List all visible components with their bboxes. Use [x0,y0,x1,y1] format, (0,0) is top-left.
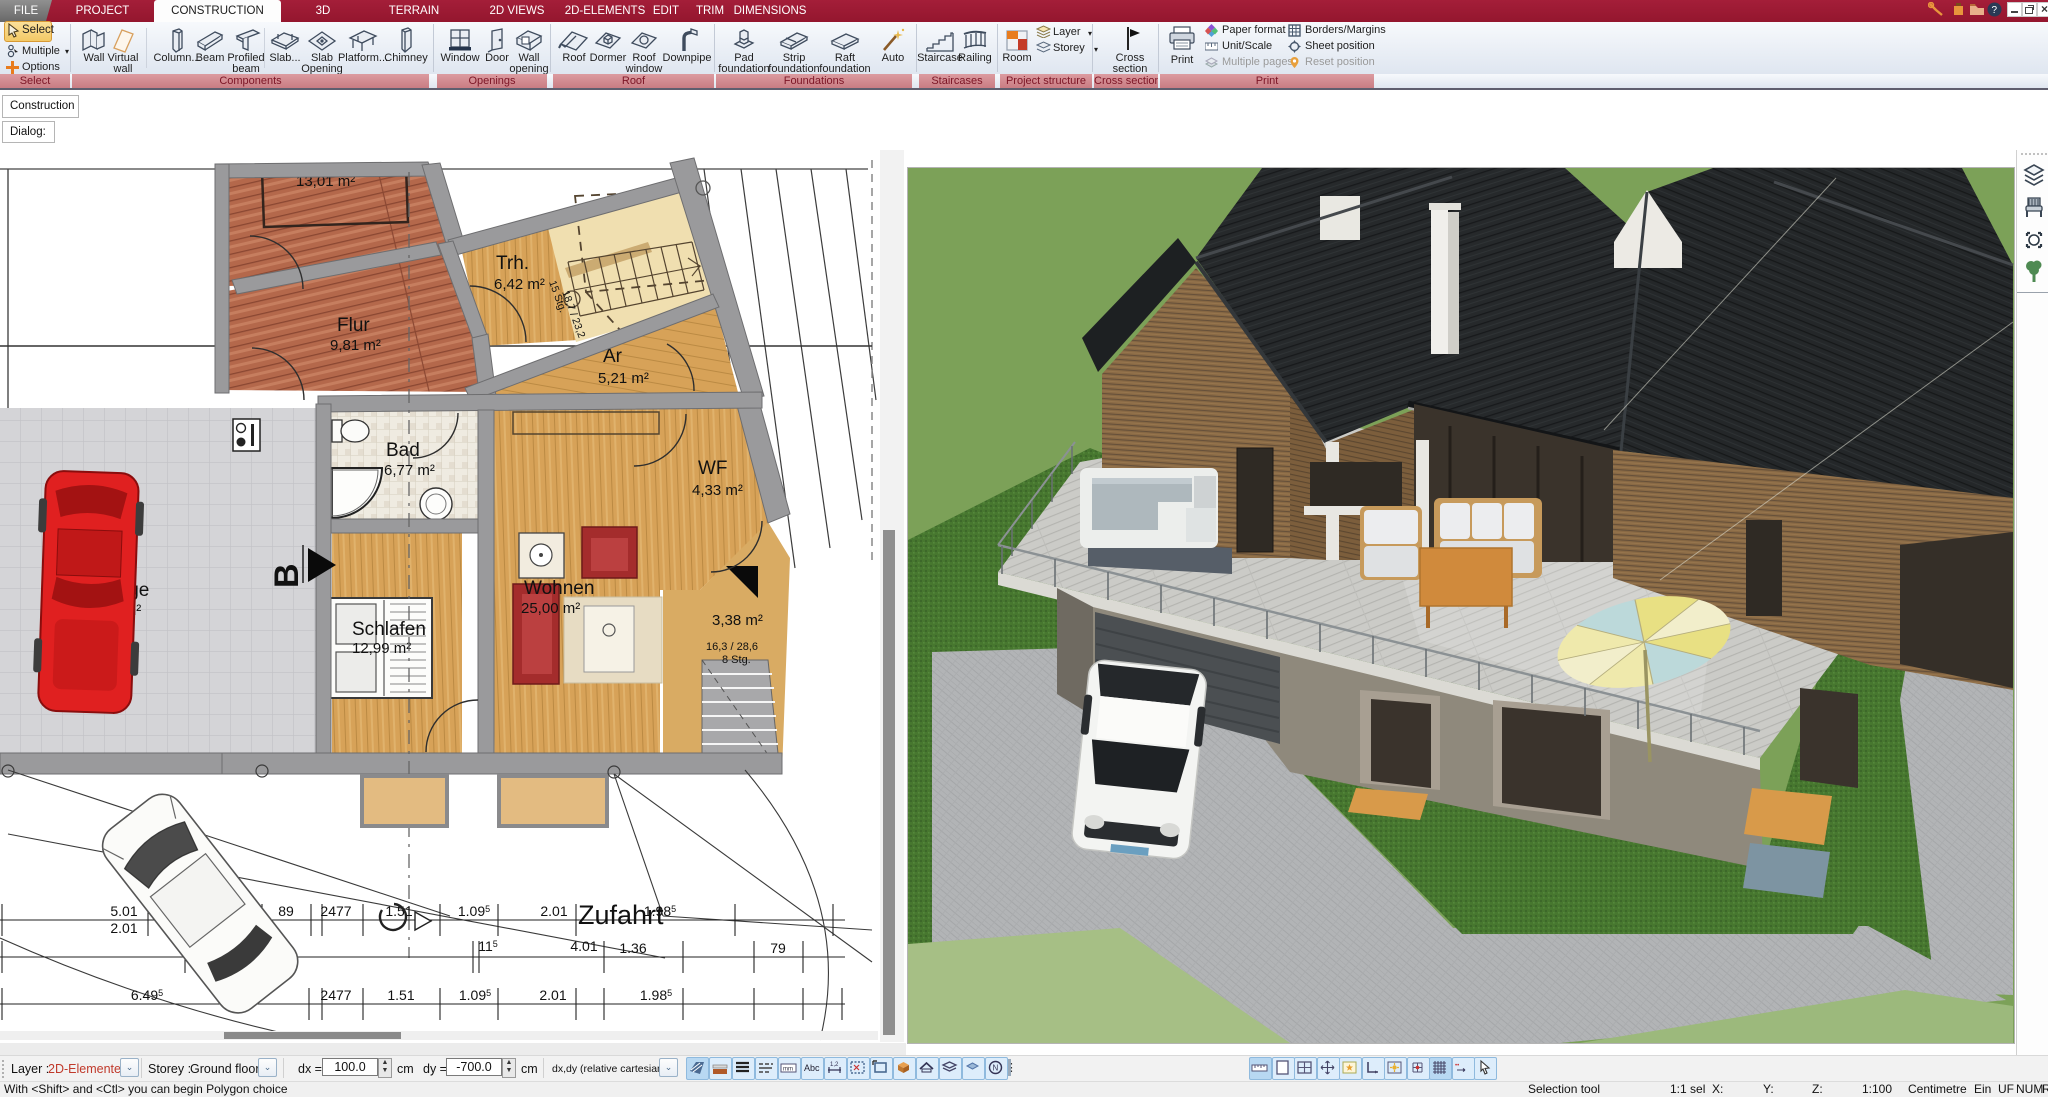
svg-text:1.51: 1.51 [387,987,414,1003]
svg-text:6,42 m²: 6,42 m² [494,276,545,293]
svg-text:4,33 m²: 4,33 m² [692,482,743,499]
svg-text:WF: WF [698,458,728,479]
svg-text:89: 89 [278,903,294,919]
svg-text:3,38 m²: 3,38 m² [712,612,763,629]
svg-text:2.01: 2.01 [539,987,566,1003]
svg-text:5.01: 5.01 [110,903,137,919]
svg-text:2.01: 2.01 [110,920,137,936]
svg-text:2477: 2477 [320,987,351,1003]
svg-text:mm: mm [783,1067,793,1073]
svg-text:N: N [993,1064,999,1073]
svg-text:Zufahrt: Zufahrt [578,900,664,930]
svg-text:2477: 2477 [320,903,351,919]
svg-text:B: B [268,563,306,588]
svg-text:9,81 m²: 9,81 m² [330,337,381,354]
svg-text:2.01: 2.01 [540,903,567,919]
svg-text:Wohnen: Wohnen [524,578,594,599]
svg-text:••: •• [1455,1063,1459,1069]
svg-text:25,00 m²: 25,00 m² [521,600,580,617]
svg-text:Trh.: Trh. [496,253,529,274]
svg-text:Schlafen: Schlafen [352,619,426,640]
svg-text:5,21 m²: 5,21 m² [598,370,649,387]
svg-text:79: 79 [770,940,786,956]
svg-text:Flur: Flur [337,315,370,336]
svg-text:?: ? [1992,5,1998,16]
svg-text:8 Stg.: 8 Stg. [722,654,751,666]
svg-text:12,99 m²: 12,99 m² [352,640,411,657]
svg-text:4.01: 4.01 [570,938,597,954]
svg-text:1,2: 1,2 [830,1062,839,1068]
svg-text:16,3 / 28,6: 16,3 / 28,6 [706,641,758,653]
svg-text:Abc: Abc [804,1063,820,1073]
svg-text:1.36: 1.36 [619,940,646,956]
